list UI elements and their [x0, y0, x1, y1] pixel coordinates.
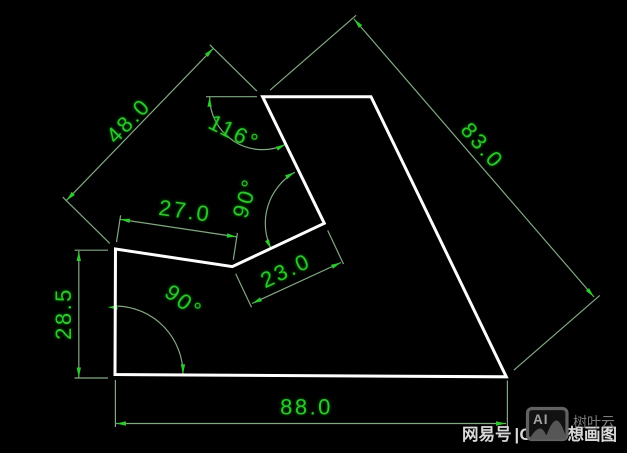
svg-text:88.0: 88.0: [280, 395, 333, 420]
svg-text:网易号: 网易号: [462, 425, 512, 444]
svg-text:28.5: 28.5: [51, 287, 76, 340]
svg-text:|: |: [515, 426, 520, 444]
svg-text:AI: AI: [533, 412, 549, 427]
svg-text:树叶云: 树叶云: [573, 414, 615, 430]
